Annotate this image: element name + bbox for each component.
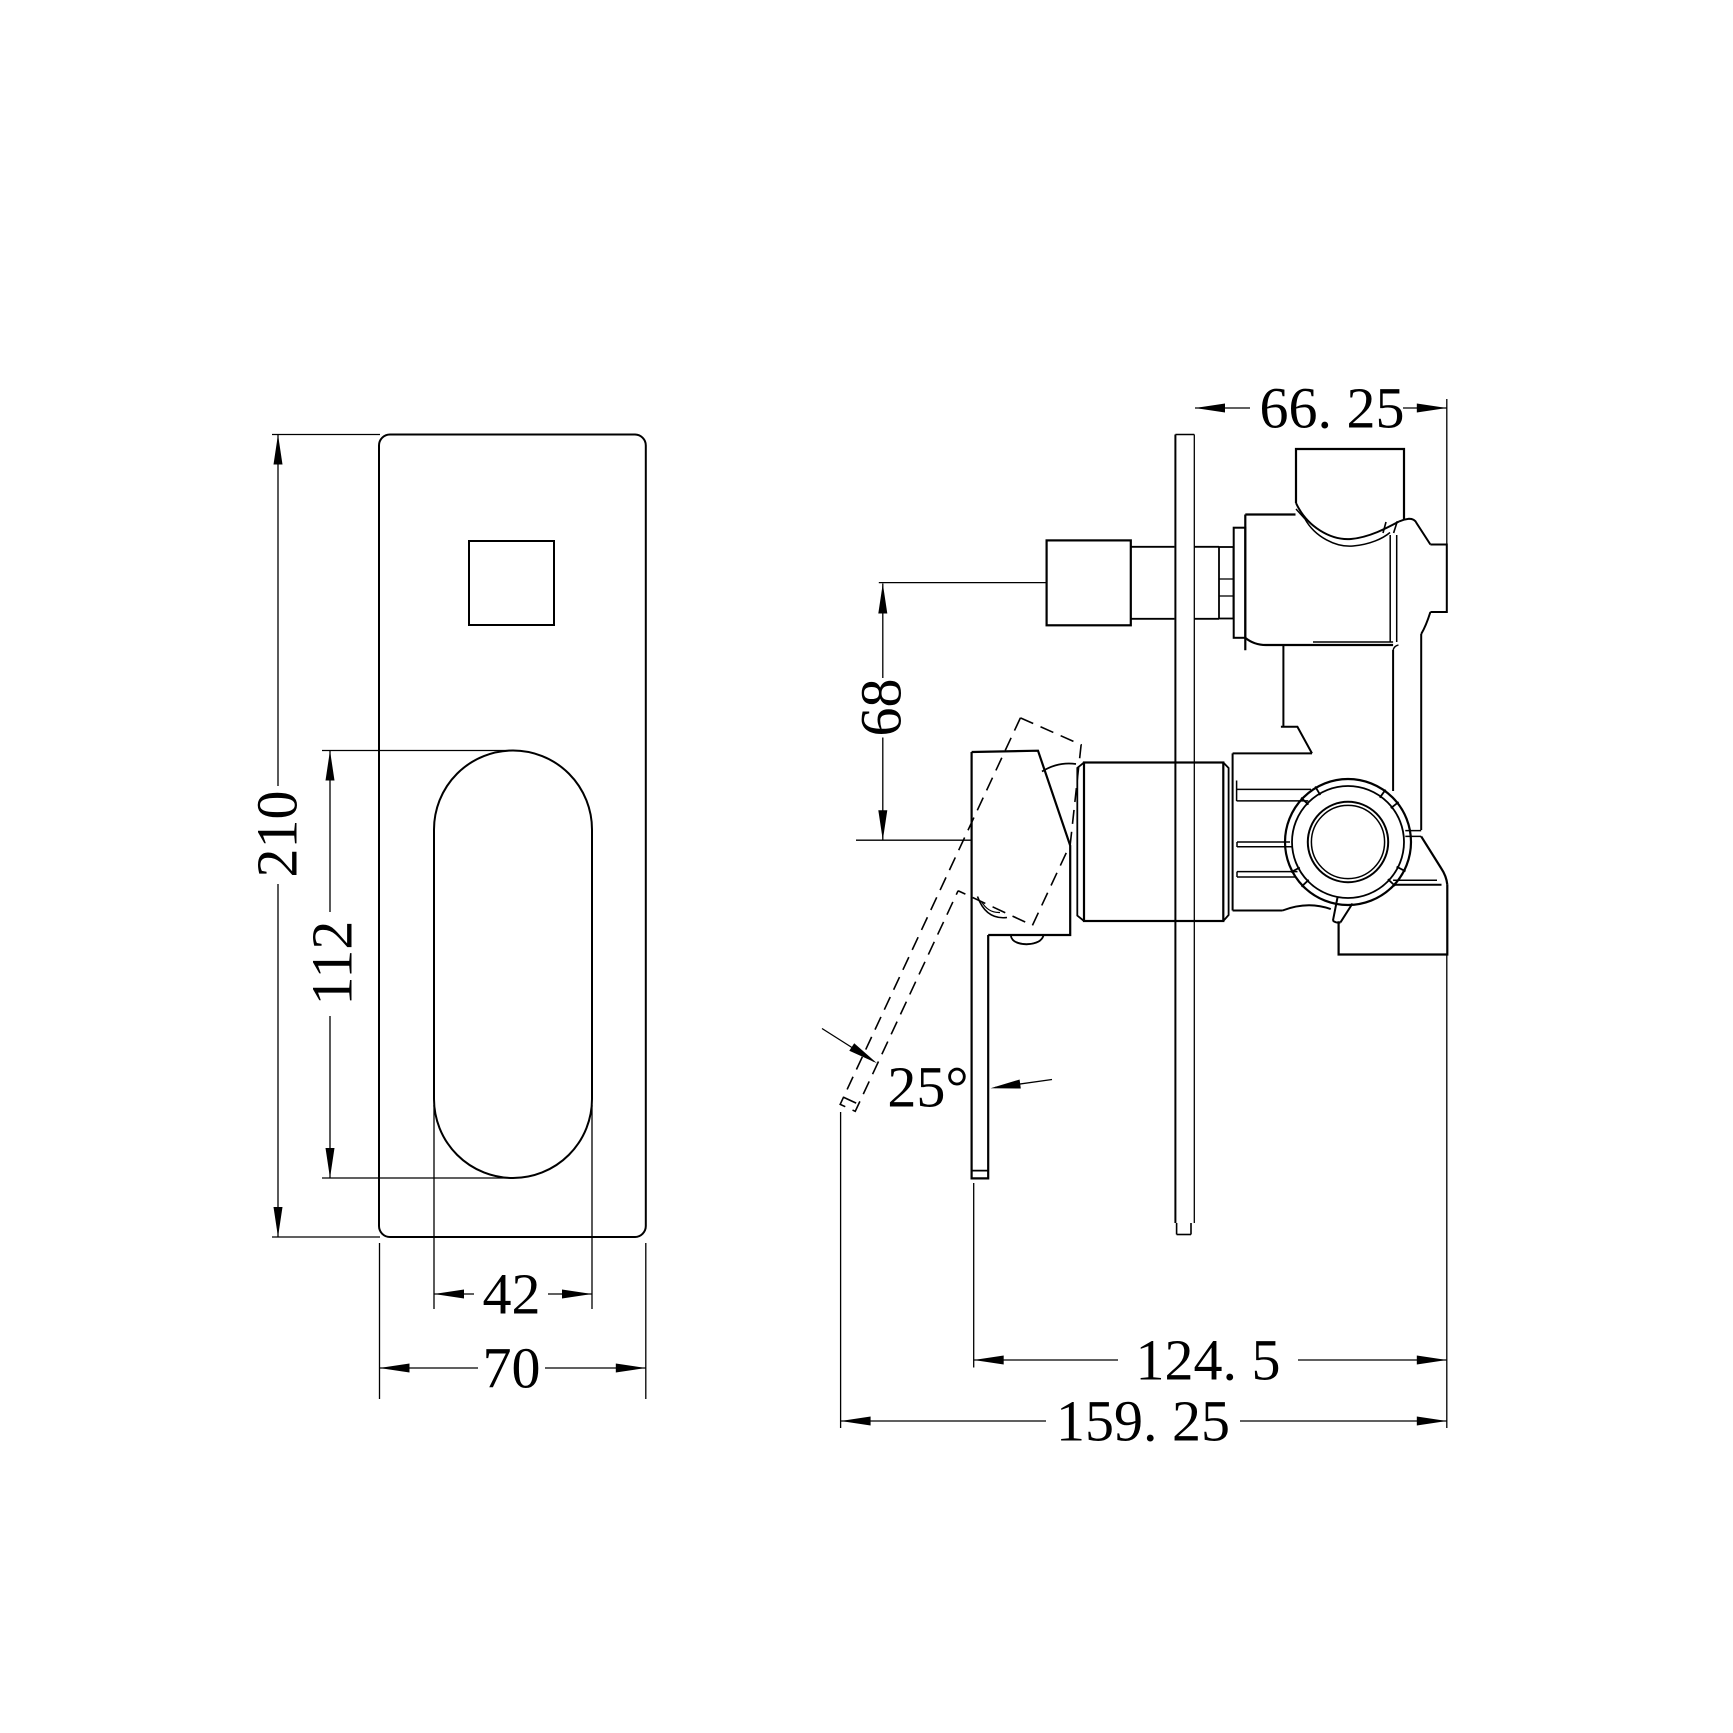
svg-text:124. 5: 124. 5 (1136, 1327, 1281, 1392)
svg-text:66. 25: 66. 25 (1260, 375, 1405, 440)
svg-text:210: 210 (244, 791, 309, 878)
svg-text:70: 70 (483, 1335, 541, 1400)
svg-text:112: 112 (299, 921, 364, 1006)
svg-text:42: 42 (483, 1261, 541, 1326)
svg-text:68: 68 (848, 679, 913, 737)
svg-text:25°: 25° (887, 1054, 968, 1119)
svg-text:159. 25: 159. 25 (1056, 1388, 1230, 1453)
